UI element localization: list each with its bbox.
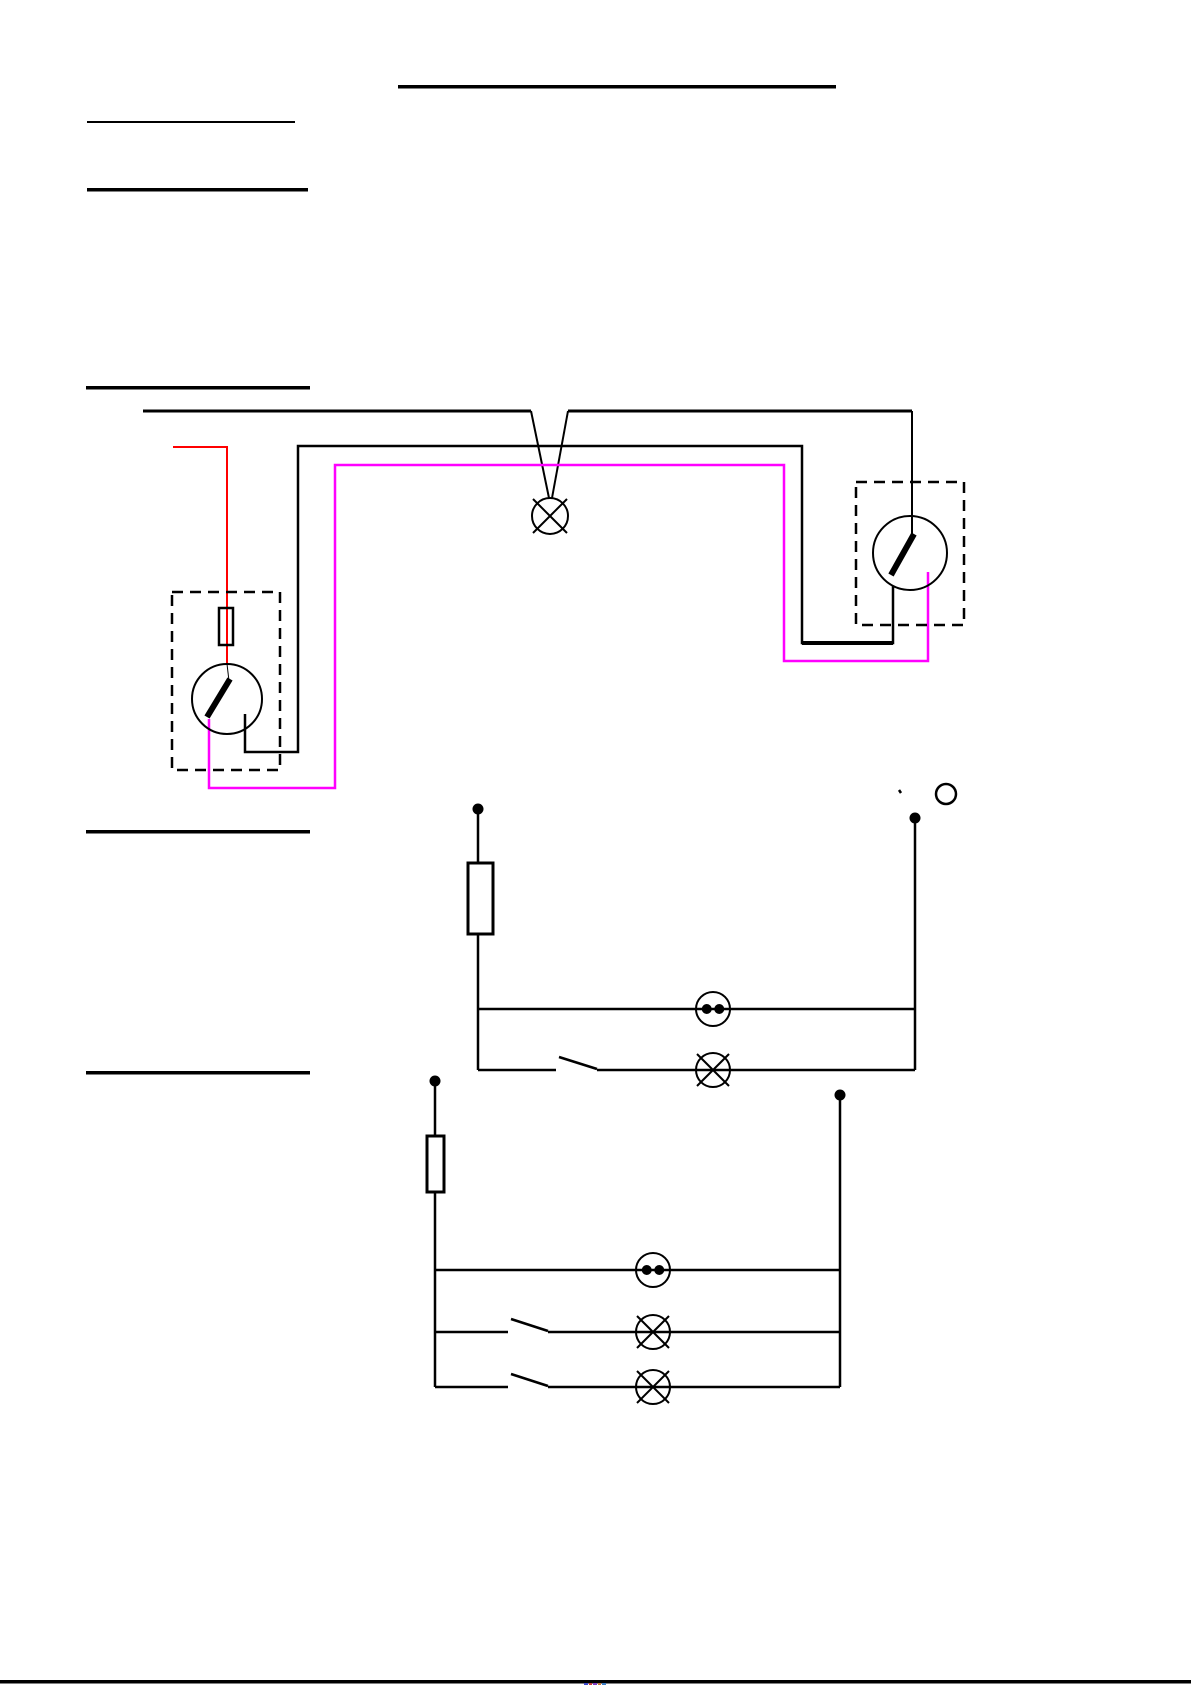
- bottom-page-rule: [0, 1680, 1191, 1684]
- heading2-underline: [87, 188, 308, 192]
- switched-live-black-wire: [245, 446, 893, 752]
- heading-underlines: [86, 85, 836, 1075]
- stray-mark: [899, 790, 901, 793]
- socket-dot: [714, 1004, 724, 1014]
- heading4-underline: [86, 830, 310, 834]
- switch2-body: [873, 516, 947, 590]
- heading5-underline: [86, 1071, 310, 1075]
- fuse-symbol: [468, 863, 493, 934]
- socket-dot: [702, 1004, 712, 1014]
- supply-terminal-left: [473, 804, 484, 815]
- circuit-diagrams-canvas: [0, 0, 1191, 1685]
- fuse-symbol: [427, 1136, 444, 1192]
- switch1-lever: [207, 679, 230, 717]
- supply-terminal-right: [910, 813, 921, 824]
- annotation-circle: [936, 784, 956, 804]
- supply-terminal-left: [430, 1076, 441, 1087]
- circuit-schematic-one-lamp: [468, 784, 956, 1087]
- two-way-switch-wiring-diagram: [143, 411, 964, 788]
- switch1-blade: [511, 1319, 548, 1331]
- page-footer: [0, 1680, 1191, 1685]
- document-page: [0, 0, 1191, 1685]
- socket-dot: [642, 1265, 652, 1275]
- heading1-underline: [87, 121, 295, 123]
- switch2-blade: [511, 1374, 548, 1386]
- switch1-body: [192, 664, 262, 734]
- socket-dot: [654, 1265, 664, 1275]
- switch2-lever: [891, 534, 914, 575]
- title-underline: [398, 85, 836, 89]
- lamp-drop-wire-right: [552, 411, 568, 498]
- switch-blade: [559, 1057, 597, 1069]
- circuit-schematic-two-lamps: [427, 1076, 846, 1405]
- lamp-drop-wire-left: [531, 411, 549, 498]
- heading3-underline: [86, 386, 310, 390]
- supply-terminal-right: [835, 1090, 846, 1101]
- ceiling-lamp-symbol: [532, 498, 568, 534]
